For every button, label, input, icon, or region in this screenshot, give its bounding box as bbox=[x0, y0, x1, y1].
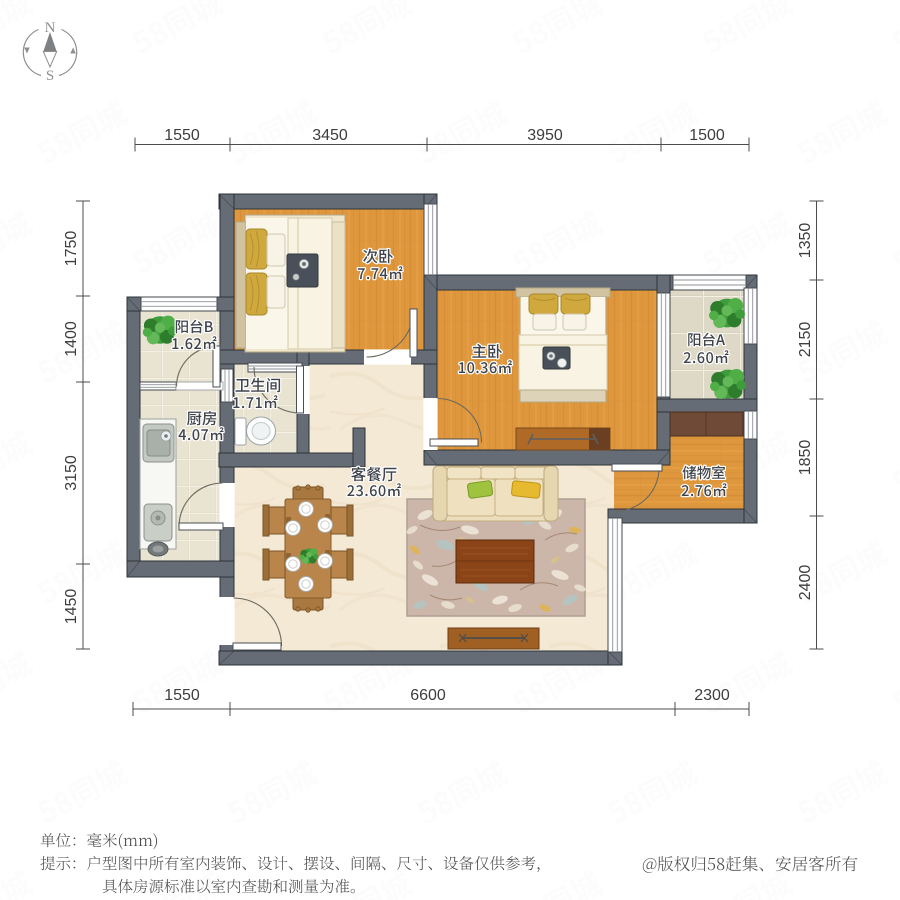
svg-text:1400: 1400 bbox=[63, 321, 80, 357]
svg-text:2300: 2300 bbox=[694, 687, 730, 704]
svg-text:3950: 3950 bbox=[527, 127, 563, 144]
svg-text:2400: 2400 bbox=[797, 565, 814, 601]
svg-text:6600: 6600 bbox=[410, 687, 446, 704]
svg-text:3450: 3450 bbox=[312, 127, 348, 144]
svg-text:N: N bbox=[45, 20, 56, 36]
svg-text:2150: 2150 bbox=[797, 322, 814, 358]
svg-text:1450: 1450 bbox=[63, 589, 80, 625]
svg-text:1550: 1550 bbox=[164, 687, 200, 704]
svg-text:1500: 1500 bbox=[689, 127, 725, 144]
svg-text:1550: 1550 bbox=[164, 127, 200, 144]
svg-text:3150: 3150 bbox=[63, 455, 80, 491]
svg-text:S: S bbox=[46, 68, 54, 84]
svg-text:1750: 1750 bbox=[63, 231, 80, 267]
svg-text:1350: 1350 bbox=[797, 223, 814, 259]
svg-text:1850: 1850 bbox=[797, 440, 814, 476]
